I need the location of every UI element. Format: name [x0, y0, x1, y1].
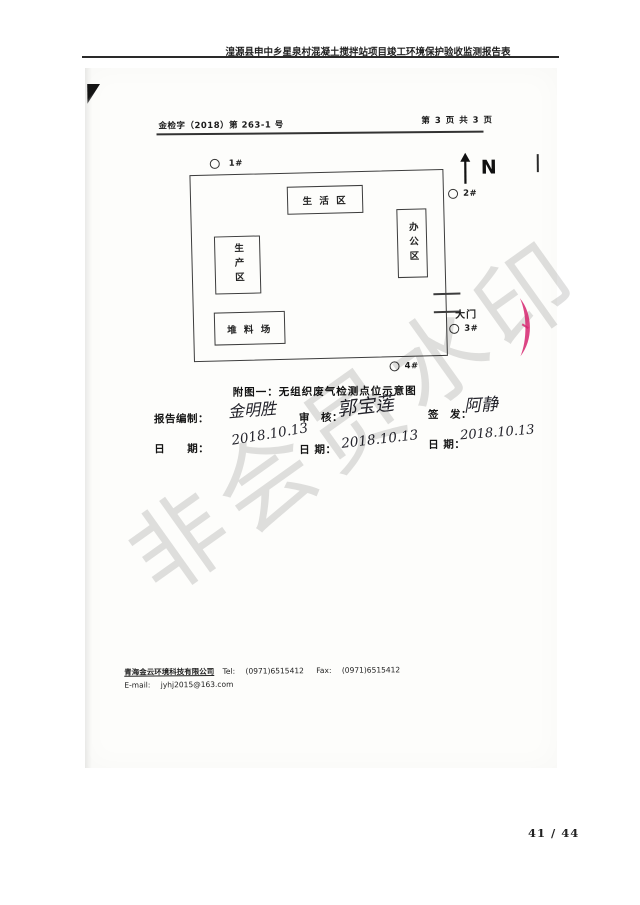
scanned-sheet: 金检字（2018）第 263-1 号 第 3 页 共 3 页 N 1# 2# [85, 68, 557, 768]
reviewer-signature: 郭宝莲 [336, 388, 396, 421]
review-date-value: 2018.10.13 [341, 427, 420, 452]
report-page: 湟源县申中乡星泉村混凝土搅拌站项目竣工环境保护验收监测报告表 金检字（2018）… [0, 0, 640, 905]
gate-label: 大门 [455, 306, 477, 321]
prepared-date-label: 日 期： [154, 441, 209, 456]
title-rule [82, 56, 559, 58]
tel-label: Tel: [223, 667, 236, 676]
email-label: E-mail: [124, 680, 150, 689]
zone-production-area: 生产区 [214, 235, 261, 294]
fax-label: Fax: [316, 666, 331, 675]
document-ref-number: 金检字（2018）第 263-1 号 [158, 118, 283, 131]
scan-edge-artifact [537, 154, 539, 172]
gate-mark-top [433, 293, 460, 295]
review-date-label: 日 期： [299, 442, 336, 457]
footer-email-line: E-mail: jyhj2015@163.com [124, 680, 233, 690]
point-label: 3# [464, 324, 478, 334]
point-label: 4# [405, 361, 419, 371]
point-circle-icon [210, 159, 220, 169]
monitoring-point-4: 4# [390, 361, 419, 371]
north-indicator: N [459, 152, 497, 184]
footer-company-line: 青海金云环境科技有限公司 Tel: (0971)6515412 Fax: (09… [124, 664, 400, 677]
site-boundary-diagram: 生 活 区 办公区 生产区 堆 料 场 [189, 169, 447, 362]
monitoring-point-3: 3# [449, 324, 478, 334]
company-name: 青海金云环境科技有限公司 [124, 667, 214, 677]
document-page-indicator: 第 3 页 共 3 页 [421, 113, 493, 126]
scan-corner-artifact [87, 84, 100, 104]
zone-living-area: 生 活 区 [287, 185, 364, 215]
prepared-by-label: 报告编制： [154, 411, 209, 426]
document-header-rule [157, 131, 484, 135]
north-label: N [481, 158, 497, 177]
fax-value: (0971)6515412 [342, 665, 400, 675]
issue-date-value: 2018.10.13 [460, 423, 535, 444]
north-arrow-icon [459, 153, 472, 185]
red-seal-fragment-icon [516, 296, 539, 358]
monitoring-point-1: 1# [210, 159, 243, 169]
point-label: 1# [229, 159, 243, 169]
zone-stockyard-area: 堆 料 场 [214, 311, 286, 346]
point-circle-icon [449, 324, 459, 334]
email-value: jyhj2015@163.com [161, 680, 234, 690]
point-circle-icon [390, 361, 400, 371]
point-circle-icon [448, 189, 458, 199]
point-label: 2# [463, 189, 477, 199]
tel-value: (0971)6515412 [245, 666, 303, 676]
page-number: 41 / 44 [528, 826, 579, 840]
prepared-date-value: 2018.10.13 [230, 420, 309, 449]
zone-office-area: 办公区 [396, 208, 428, 278]
monitoring-point-2: 2# [448, 189, 477, 199]
prepared-by-signature: 金明胜 [227, 395, 277, 423]
issuer-signature: 阿静 [463, 390, 498, 417]
scan-content: 金检字（2018）第 263-1 号 第 3 页 共 3 页 N 1# 2# [82, 66, 560, 770]
